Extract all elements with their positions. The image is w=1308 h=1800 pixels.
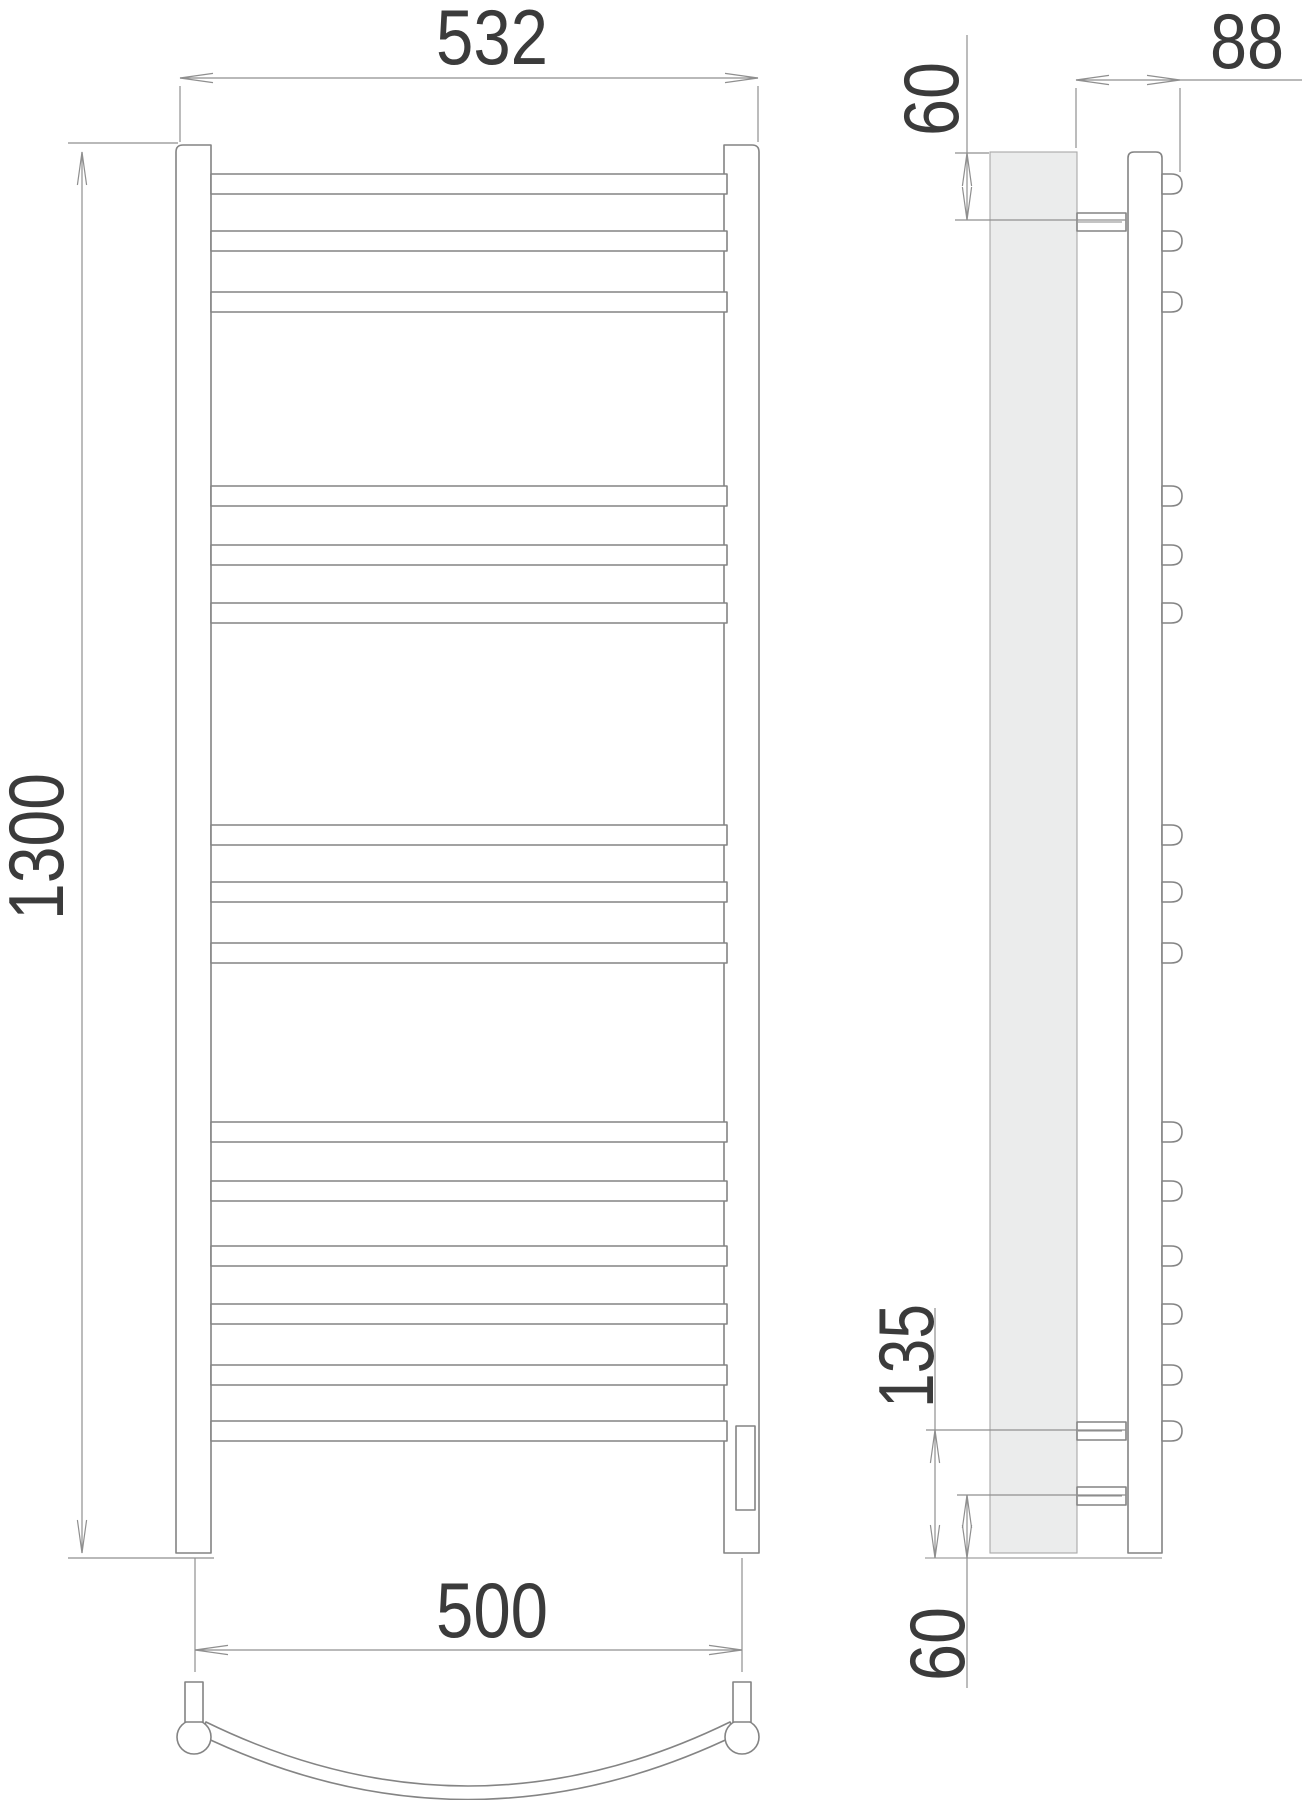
rung-bar [211,882,727,902]
rung-end-bump [1162,174,1182,194]
dim-side-depth-label: 88 [1210,0,1284,85]
shelf-stub [733,1682,751,1722]
drawing-page: 5321300500886013560 [0,0,1308,1800]
rung-end-bump [1162,603,1182,623]
dim-side-mid-offset-label: 135 [862,1304,950,1408]
rung-bar [211,1304,727,1324]
rung-bar [211,545,727,565]
front-view [176,145,759,1800]
rung-bar [211,603,727,623]
rung-end-bump [1162,825,1182,845]
front-rails [176,145,759,1553]
front-rungs [211,174,727,1441]
dim-front-width-top-label: 532 [436,0,548,81]
rung-end-bumps [1162,174,1182,1441]
rung-end-bump [1162,1122,1182,1142]
rung-bar [211,1181,727,1201]
rung-bar [211,1365,727,1385]
rung-bar [211,1421,727,1441]
rung-end-bump [1162,292,1182,312]
shelf-foot [177,1720,211,1754]
rung-end-bump [1162,545,1182,565]
right-vertical-rail [724,145,759,1553]
rung-end-bump [1162,1246,1182,1266]
rung-bar [211,486,727,506]
rung-end-bump [1162,1181,1182,1201]
curved-shelf-bar [200,1722,736,1800]
rung-end-bump [1162,943,1182,963]
wall-section [990,152,1077,1553]
wall-brackets [1077,213,1126,1505]
towel-rail-technical-drawing: 5321300500886013560 [0,0,1308,1800]
rung-end-bump [1162,1304,1182,1324]
heater-element-box-group [736,1426,755,1510]
rung-bar [211,174,727,194]
shelf-foot [725,1720,759,1754]
wall-strip [990,152,1077,1553]
left-vertical-rail [176,145,211,1553]
dim-front-height-label: 1300 [0,773,80,920]
dim-front-width-bottom-label: 500 [436,1566,548,1654]
rung-bar [211,292,727,312]
rung-end-bump [1162,1421,1182,1441]
rung-bar [211,1246,727,1266]
side-rail-tube [1128,152,1162,1553]
heater-element-box [736,1426,755,1510]
rung-bar [211,231,727,251]
rung-bar [211,825,727,845]
dim-side-bottom-offset-label: 60 [893,1607,981,1681]
side-view [925,152,1182,1558]
rung-end-bump [1162,231,1182,251]
shelf-stub [185,1682,203,1722]
bottom-shelf [177,1682,759,1800]
dim-side-top-offset-label: 60 [887,62,975,136]
rung-end-bump [1162,1365,1182,1385]
rung-bar [211,1122,727,1142]
rung-end-bump [1162,882,1182,902]
rung-bar [211,943,727,963]
rung-end-bump [1162,486,1182,506]
